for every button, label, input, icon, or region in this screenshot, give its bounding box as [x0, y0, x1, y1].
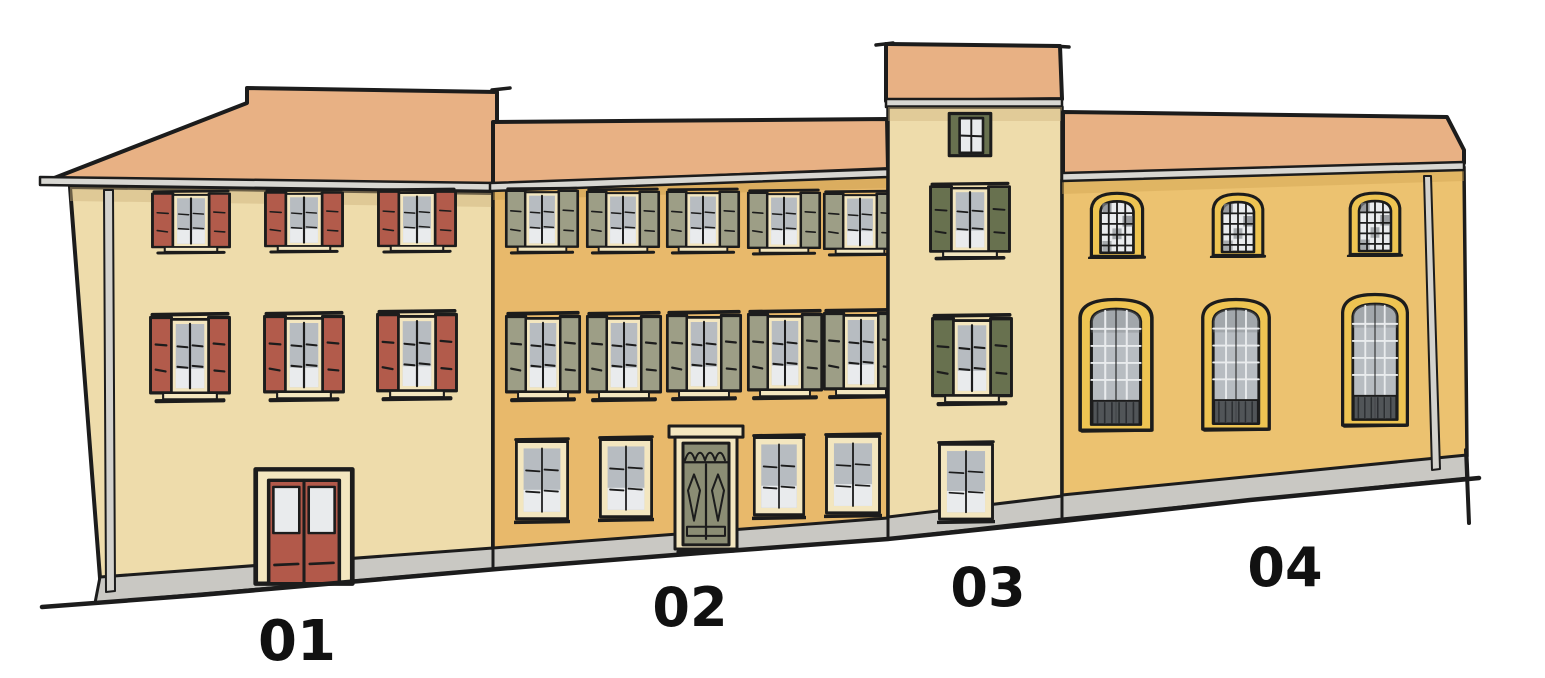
- window-plain: [825, 434, 881, 517]
- window-olive-shuttered: [748, 311, 821, 398]
- building-02-label: 02: [652, 576, 727, 639]
- window-red-shuttered: [265, 313, 344, 400]
- building-01: [40, 88, 510, 603]
- window-tiny-attic: [949, 114, 991, 156]
- window-olive-shuttered: [824, 191, 895, 255]
- building-02: [490, 119, 898, 569]
- building-01-roof: [44, 88, 497, 188]
- window-arched-tall: [1080, 300, 1152, 432]
- window-olive-shuttered: [748, 190, 819, 254]
- window-plain: [938, 442, 994, 523]
- window-red-shuttered: [152, 191, 229, 253]
- building-04: [1062, 112, 1469, 523]
- window-olive-shuttered: [506, 313, 579, 400]
- building-03-label: 03: [950, 556, 1025, 619]
- ridge-overhang-tick: [492, 88, 510, 90]
- entry-door-red: [256, 469, 353, 583]
- window-arched-small: [1211, 194, 1264, 257]
- window-green-shuttered: [933, 315, 1012, 404]
- window-arched-small: [1090, 193, 1145, 258]
- window-arched-small: [1348, 193, 1401, 256]
- ink-drawing: [40, 43, 1479, 607]
- window-green-shuttered: [931, 183, 1010, 258]
- window-arched-tall: [1343, 295, 1408, 427]
- window-olive-shuttered: [667, 189, 738, 253]
- entry-door-olive: [669, 426, 743, 552]
- window-plain: [753, 435, 805, 519]
- window-olive-shuttered: [506, 188, 577, 253]
- window-olive-shuttered: [667, 312, 740, 399]
- downpipe: [104, 190, 115, 592]
- cap-overhang-tick: [876, 43, 893, 45]
- sketch-canvas: 01 02 03 04: [0, 0, 1545, 678]
- window-red-shuttered: [265, 190, 342, 252]
- window-olive-shuttered: [587, 313, 660, 400]
- building-01-label: 01: [258, 609, 336, 674]
- window-red-shuttered: [151, 314, 230, 401]
- tower-roof-cap: [886, 44, 1062, 101]
- building-04-label: 04: [1247, 536, 1322, 599]
- street-elevation-illustration: 01 02 03 04: [0, 0, 1545, 678]
- cap-overhang-tick: [1053, 46, 1069, 47]
- window-plain: [599, 437, 653, 521]
- window-olive-shuttered: [587, 189, 658, 253]
- window-plain: [515, 439, 569, 523]
- window-arched-tall: [1203, 299, 1270, 430]
- building-03: [876, 43, 1069, 539]
- window-red-shuttered: [378, 189, 455, 252]
- window-red-shuttered: [378, 311, 457, 399]
